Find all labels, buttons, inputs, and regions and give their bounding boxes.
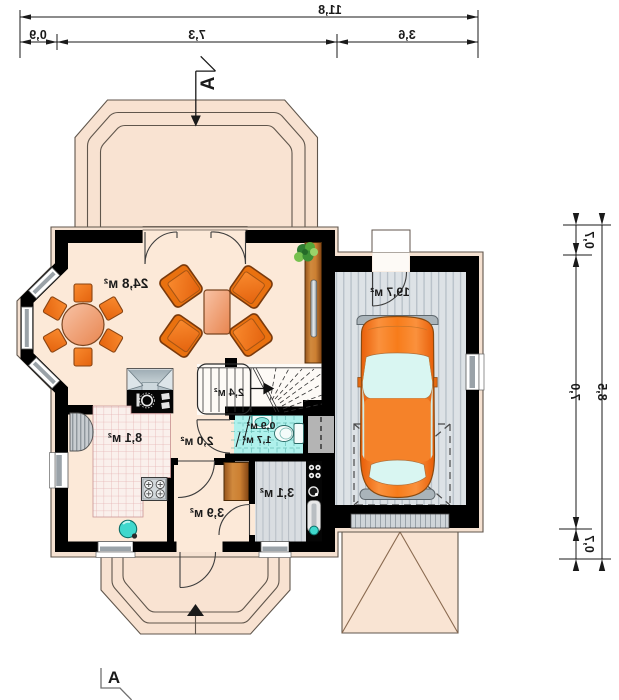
svg-text:1,7 м²: 1,7 м²: [242, 434, 271, 446]
svg-text:A: A: [198, 77, 219, 91]
svg-text:3,9 м²: 3,9 м²: [190, 506, 224, 520]
svg-text:7,0: 7,0: [568, 383, 582, 400]
svg-text:2,4 м²: 2,4 м²: [214, 387, 244, 399]
svg-text:24,8 м²: 24,8 м²: [103, 276, 148, 291]
svg-text:11,8: 11,8: [318, 3, 342, 17]
svg-text:7,3: 7,3: [188, 28, 205, 42]
svg-text:0,7: 0,7: [582, 535, 596, 552]
svg-text:A: A: [108, 668, 120, 687]
svg-text:3,6: 3,6: [398, 28, 415, 42]
svg-text:8,1 м²: 8,1 м²: [108, 431, 142, 445]
svg-text:2,0 м²: 2,0 м²: [181, 434, 214, 448]
svg-text:0,9: 0,9: [29, 28, 46, 42]
svg-text:0,9 м²: 0,9 м²: [246, 420, 275, 432]
svg-text:0,7: 0,7: [582, 231, 596, 248]
svg-text:3,1 м²: 3,1 м²: [260, 486, 294, 500]
svg-text:8,5: 8,5: [595, 383, 609, 400]
svg-text:19,7 м²: 19,7 м²: [370, 285, 410, 299]
